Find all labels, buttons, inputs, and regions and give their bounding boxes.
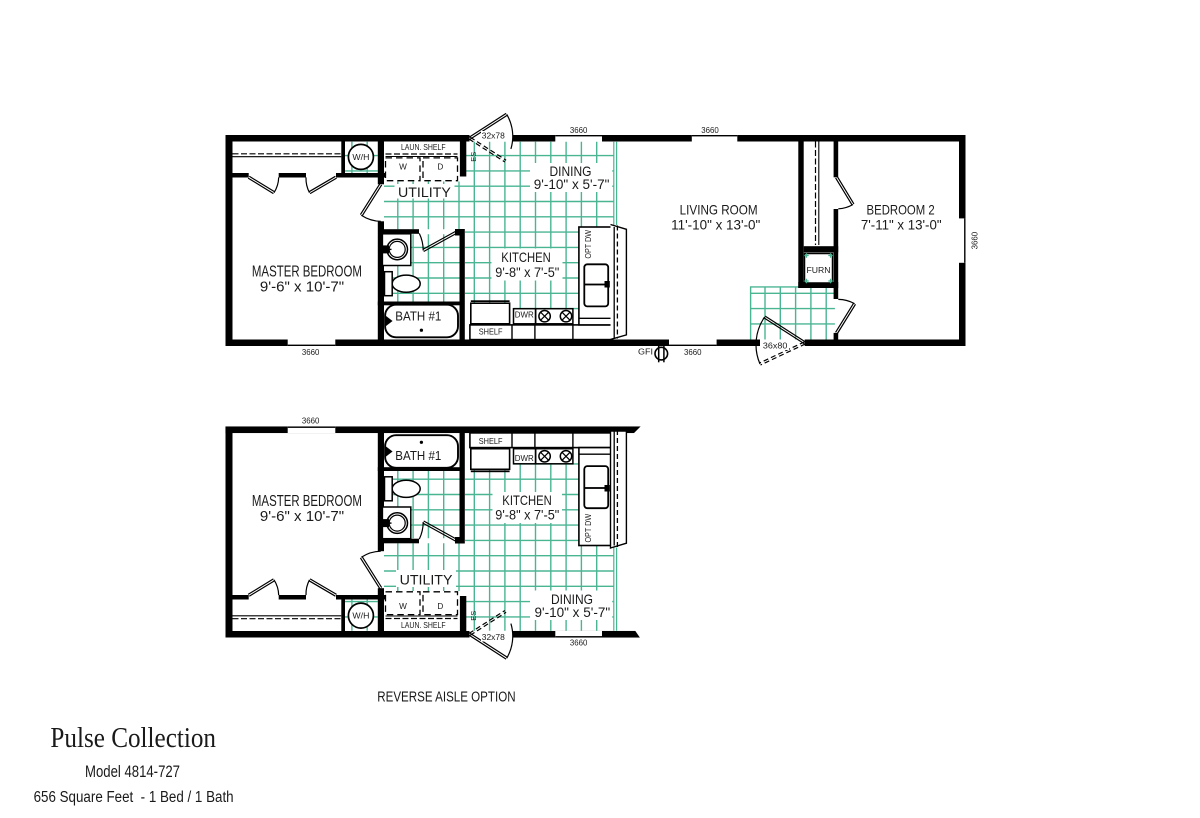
- svg-text:DWR: DWR: [515, 454, 534, 463]
- svg-text:BATH #1: BATH #1: [395, 309, 441, 323]
- svg-text:DWR: DWR: [515, 311, 534, 320]
- svg-text:3660: 3660: [970, 231, 979, 249]
- svg-text:ES: ES: [469, 611, 478, 621]
- svg-text:BEDROOM 2: BEDROOM 2: [867, 201, 935, 217]
- svg-text:LAUN. SHELF: LAUN. SHELF: [401, 621, 446, 630]
- svg-text:3660: 3660: [302, 348, 320, 357]
- svg-text:9'-6" x 10'-7": 9'-6" x 10'-7": [260, 509, 344, 525]
- svg-text:OPT DW: OPT DW: [584, 230, 593, 259]
- svg-text:9'-8" x 7'-5": 9'-8" x 7'-5": [495, 264, 559, 280]
- svg-text:W: W: [399, 602, 407, 611]
- svg-text:D: D: [437, 602, 443, 611]
- svg-text:36x80: 36x80: [763, 341, 788, 351]
- svg-text:MASTER BEDROOM: MASTER BEDROOM: [252, 493, 362, 510]
- svg-text:3660: 3660: [570, 638, 588, 647]
- svg-text:D: D: [437, 162, 443, 171]
- svg-text:FURN: FURN: [807, 266, 831, 275]
- svg-text:W: W: [399, 162, 407, 171]
- svg-text:3660: 3660: [302, 417, 320, 426]
- svg-text:GFI: GFI: [638, 347, 653, 357]
- svg-text:7'-11" x 13'-0": 7'-11" x 13'-0": [861, 217, 942, 233]
- svg-text:Pulse Collection: Pulse Collection: [50, 722, 216, 754]
- svg-text:MASTER BEDROOM: MASTER BEDROOM: [252, 263, 362, 280]
- svg-text:9'-6" x 10'-7": 9'-6" x 10'-7": [260, 280, 344, 296]
- svg-text:KITCHEN: KITCHEN: [501, 249, 550, 265]
- svg-text:32x78: 32x78: [482, 131, 505, 141]
- svg-text:9'-10" x 5'-7": 9'-10" x 5'-7": [534, 604, 610, 620]
- svg-text:3660: 3660: [570, 126, 588, 135]
- svg-text:W/H: W/H: [352, 612, 369, 621]
- svg-text:SHELF: SHELF: [479, 437, 503, 446]
- svg-text:32x78: 32x78: [482, 632, 505, 642]
- svg-text:656 Square Feet - 1 Bed / 1 B: 656 Square Feet - 1 Bed / 1 Bath: [34, 789, 234, 806]
- svg-text:3660: 3660: [684, 348, 702, 357]
- svg-text:9'-8" x 7'-5": 9'-8" x 7'-5": [495, 507, 559, 523]
- svg-text:OPT DW: OPT DW: [584, 514, 593, 543]
- svg-text:LIVING ROOM: LIVING ROOM: [680, 201, 758, 217]
- svg-text:Model 4814-727: Model 4814-727: [85, 763, 180, 781]
- svg-text:BATH #1: BATH #1: [395, 449, 441, 463]
- svg-text:9'-10" x 5'-7": 9'-10" x 5'-7": [534, 176, 610, 192]
- svg-text:UTILITY: UTILITY: [400, 572, 453, 587]
- svg-text:REVERSE AISLE OPTION: REVERSE AISLE OPTION: [377, 689, 515, 706]
- svg-text:ES: ES: [469, 152, 478, 162]
- svg-text:3660: 3660: [701, 126, 719, 135]
- svg-text:11'-10" x 13'-0": 11'-10" x 13'-0": [671, 217, 760, 233]
- svg-text:UTILITY: UTILITY: [398, 185, 451, 200]
- svg-text:W/H: W/H: [352, 153, 369, 162]
- svg-text:SHELF: SHELF: [479, 328, 503, 337]
- svg-text:LAUN. SHELF: LAUN. SHELF: [401, 143, 446, 152]
